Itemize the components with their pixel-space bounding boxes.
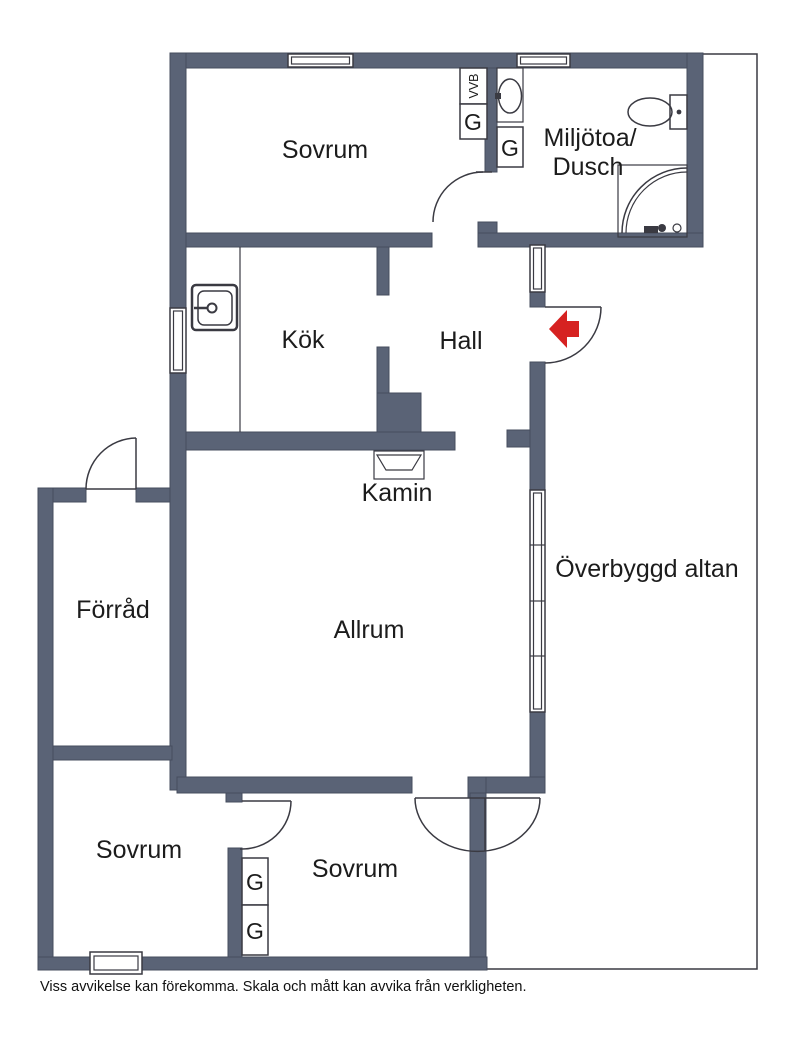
window-hall-right <box>530 245 545 292</box>
fireplace-symbol <box>374 451 424 479</box>
shower-symbol <box>618 165 687 237</box>
room-label-kamin: Kamin <box>362 479 433 507</box>
toilet-symbol <box>628 95 687 129</box>
room-label-altan: Överbyggd altan <box>555 555 738 583</box>
bathroom-sink-symbol <box>495 68 523 122</box>
window-kitchen-left <box>170 308 186 373</box>
entrance-arrow-icon <box>549 310 579 348</box>
closet-label-g-bottom2: G <box>246 918 264 944</box>
door-bedroom-bathroom <box>433 172 492 222</box>
fixtures <box>192 68 687 955</box>
room-label-hall: Hall <box>439 327 482 355</box>
floorplan-drawing: Sovrum Miljötoa/ Dusch Kök Hall Kamin Öv… <box>0 0 800 1046</box>
disclaimer-text: Viss avvikelse kan förekomma. Skala och … <box>40 979 527 995</box>
closet-label-vvb: VVB <box>467 73 481 98</box>
room-label-sovrum-bm: Sovrum <box>312 855 398 883</box>
closet-label-g-bathroom: G <box>501 135 519 161</box>
window-top-bathroom <box>517 54 570 67</box>
room-label-forrad: Förråd <box>76 596 150 624</box>
kitchen-sink-symbol <box>192 285 237 330</box>
room-label-miljotoa-2: Dusch <box>553 153 624 181</box>
closet-label-g-bottom1: G <box>246 869 264 895</box>
window-bottom-bedroom <box>90 952 142 974</box>
room-label-sovrum-top: Sovrum <box>282 136 368 164</box>
door-forrad <box>86 438 136 489</box>
window-top-bedroom <box>288 54 353 67</box>
room-label-allrum: Allrum <box>334 616 405 644</box>
floorplan-page: Sovrum Miljötoa/ Dusch Kök Hall Kamin Öv… <box>0 0 800 1046</box>
window-altan-band <box>530 490 545 712</box>
closet-label-g-bedroom: G <box>464 109 482 135</box>
room-label-miljotoa-1: Miljötoa/ <box>543 124 636 152</box>
room-label-kok: Kök <box>281 326 325 354</box>
door-bedroom-middle <box>240 801 291 849</box>
room-label-sovrum-bl: Sovrum <box>96 836 182 864</box>
walls <box>38 53 703 970</box>
